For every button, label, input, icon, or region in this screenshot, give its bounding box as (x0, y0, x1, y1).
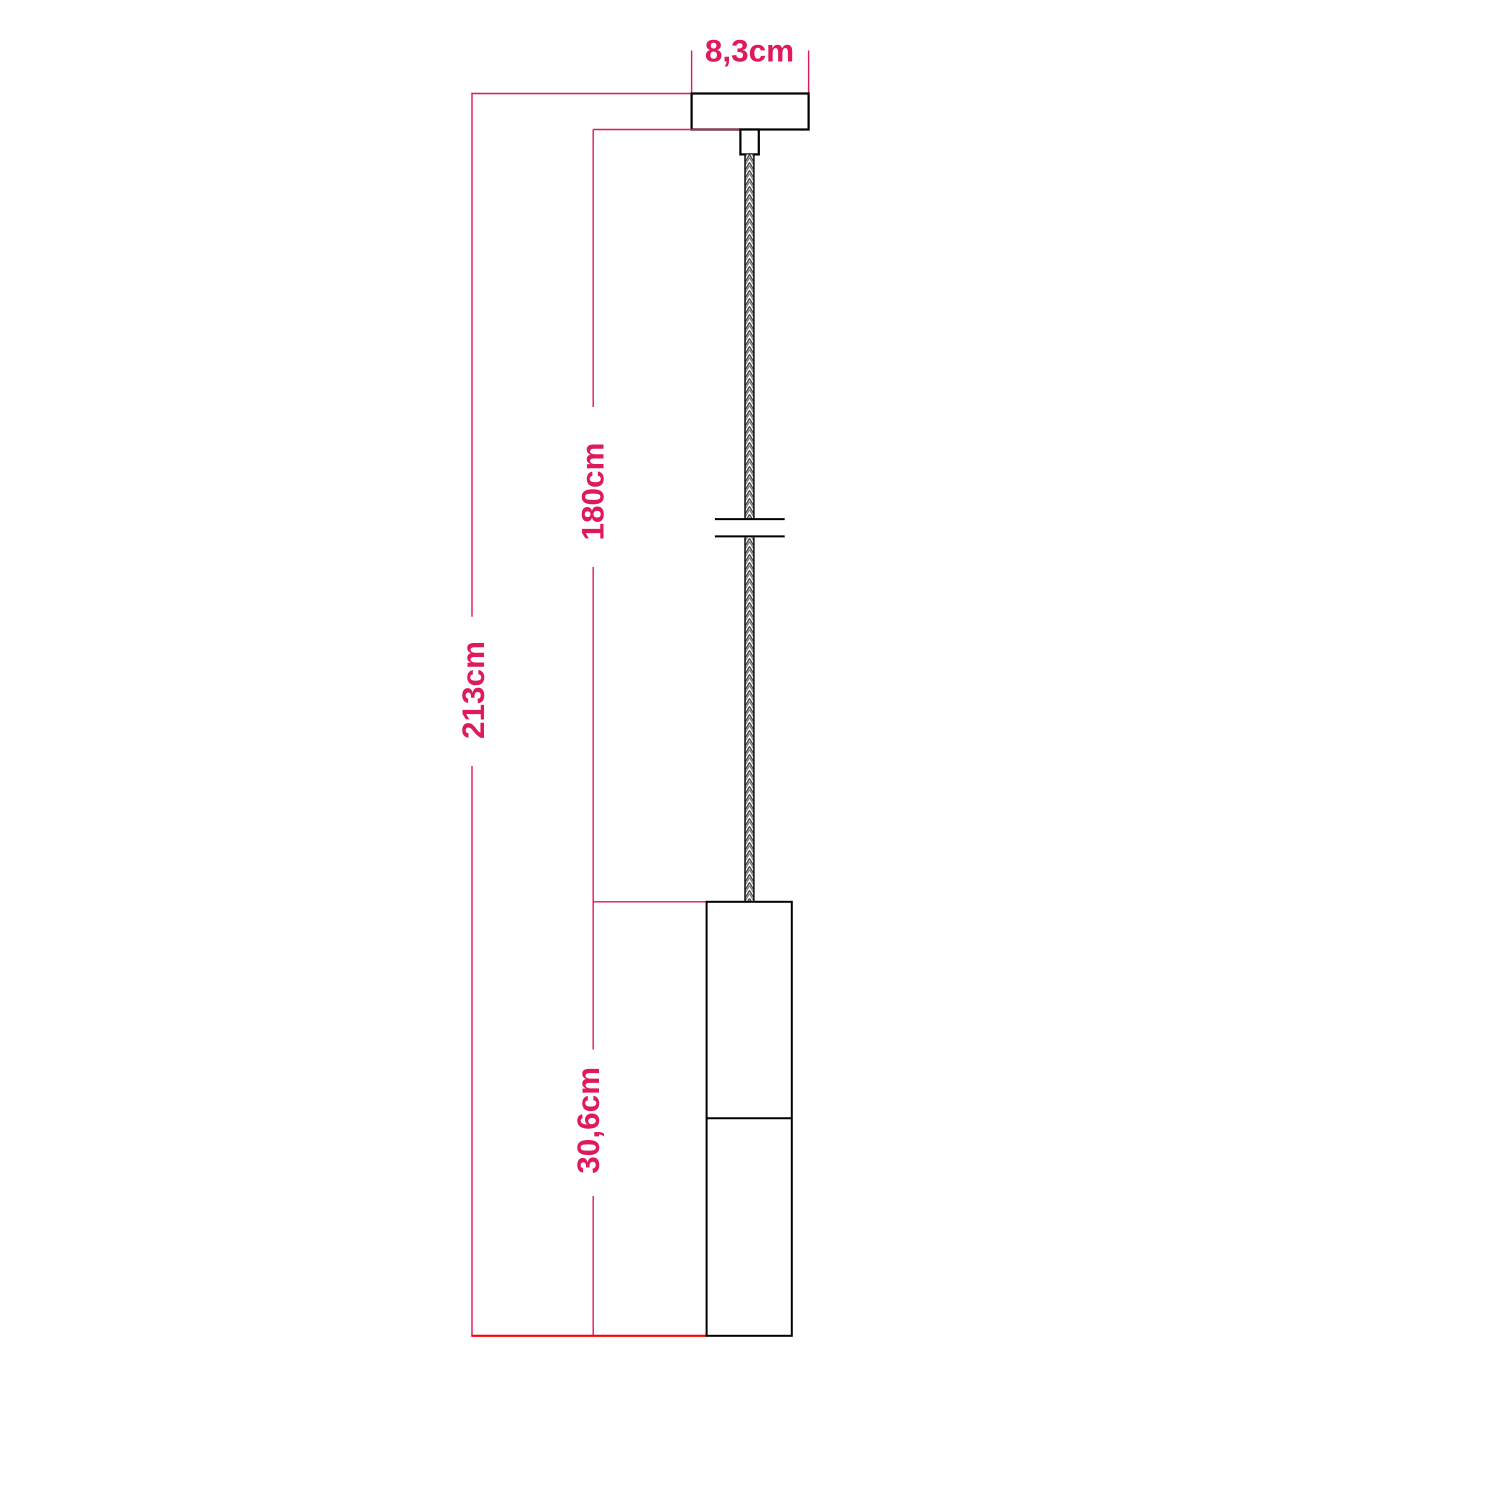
svg-text:8,3cm: 8,3cm (705, 33, 794, 69)
svg-text:213cm: 213cm (455, 641, 491, 739)
svg-text:30,6cm: 30,6cm (570, 1067, 606, 1174)
svg-text:180cm: 180cm (575, 442, 611, 540)
